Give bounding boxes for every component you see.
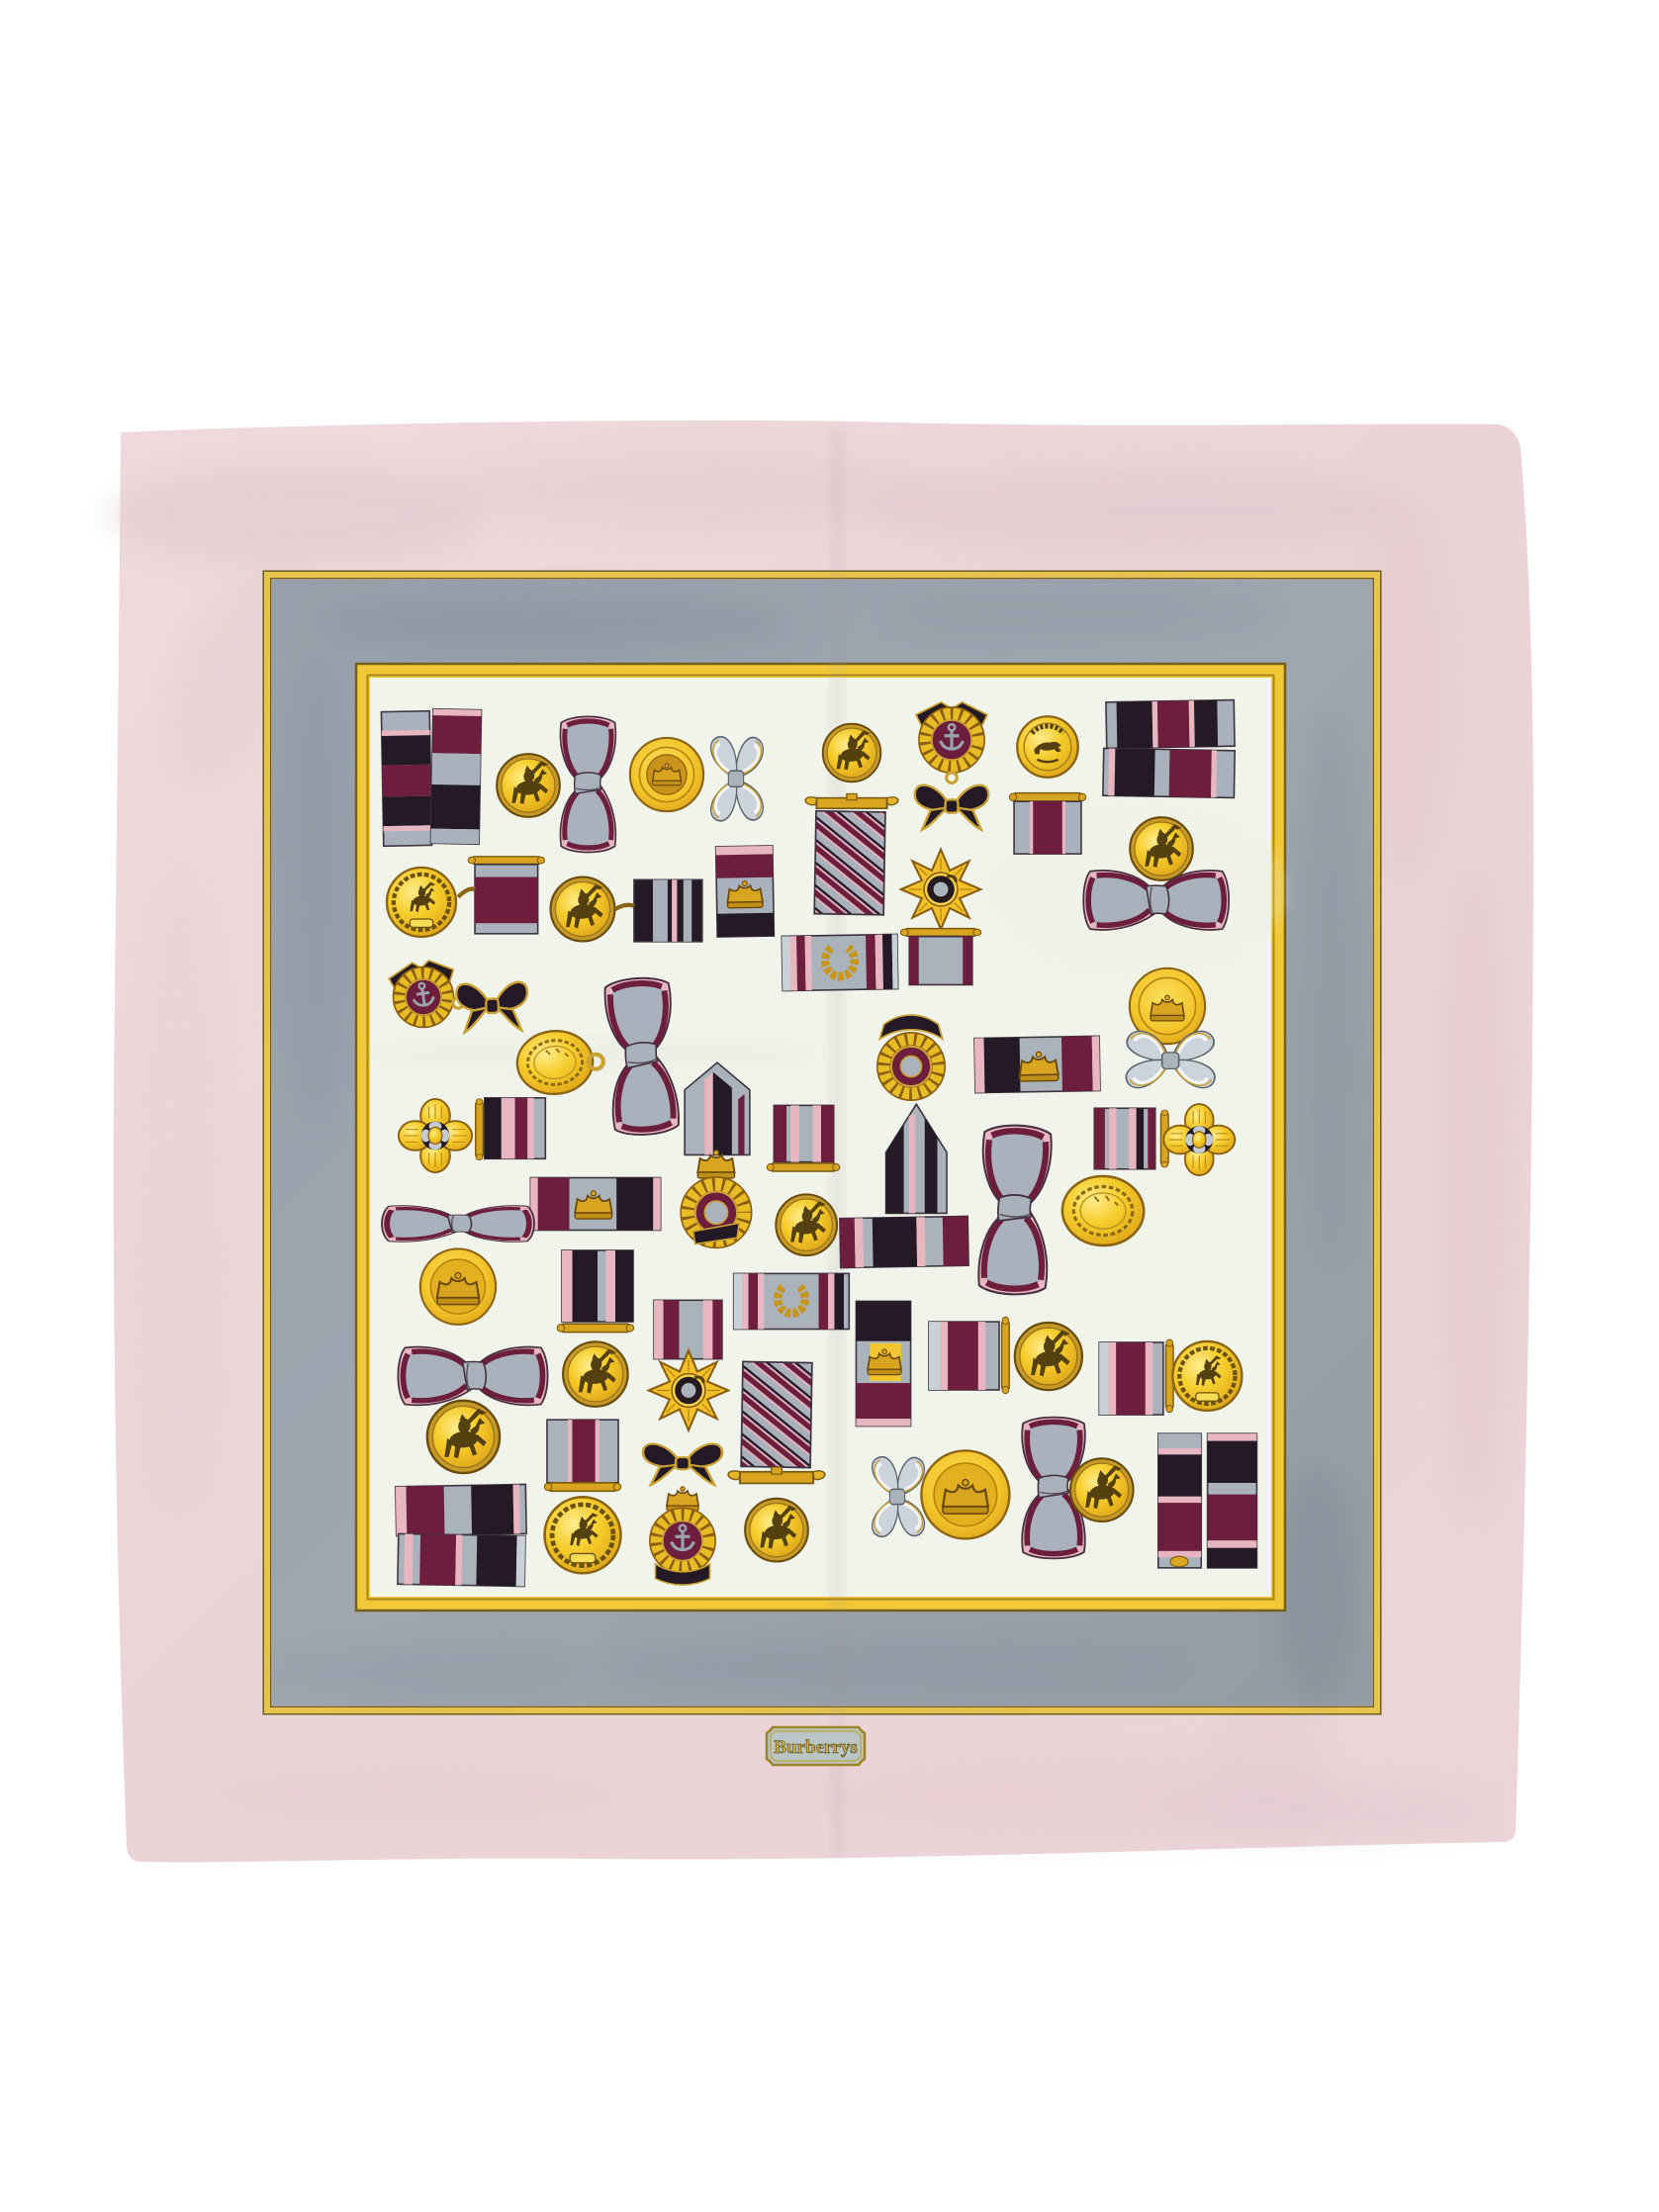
svg-text:Burberrys: Burberrys — [774, 1737, 857, 1758]
